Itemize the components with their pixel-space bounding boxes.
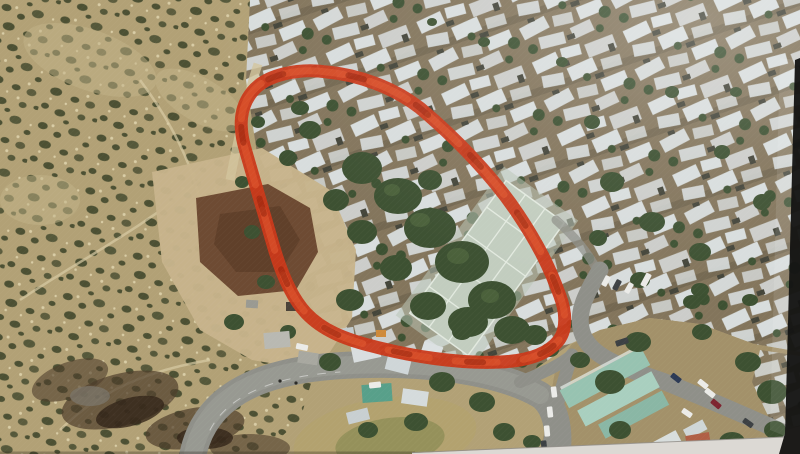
glare-haze (0, 0, 800, 454)
aerial-photo-canvas (0, 0, 800, 454)
aerial-photo (0, 0, 800, 454)
